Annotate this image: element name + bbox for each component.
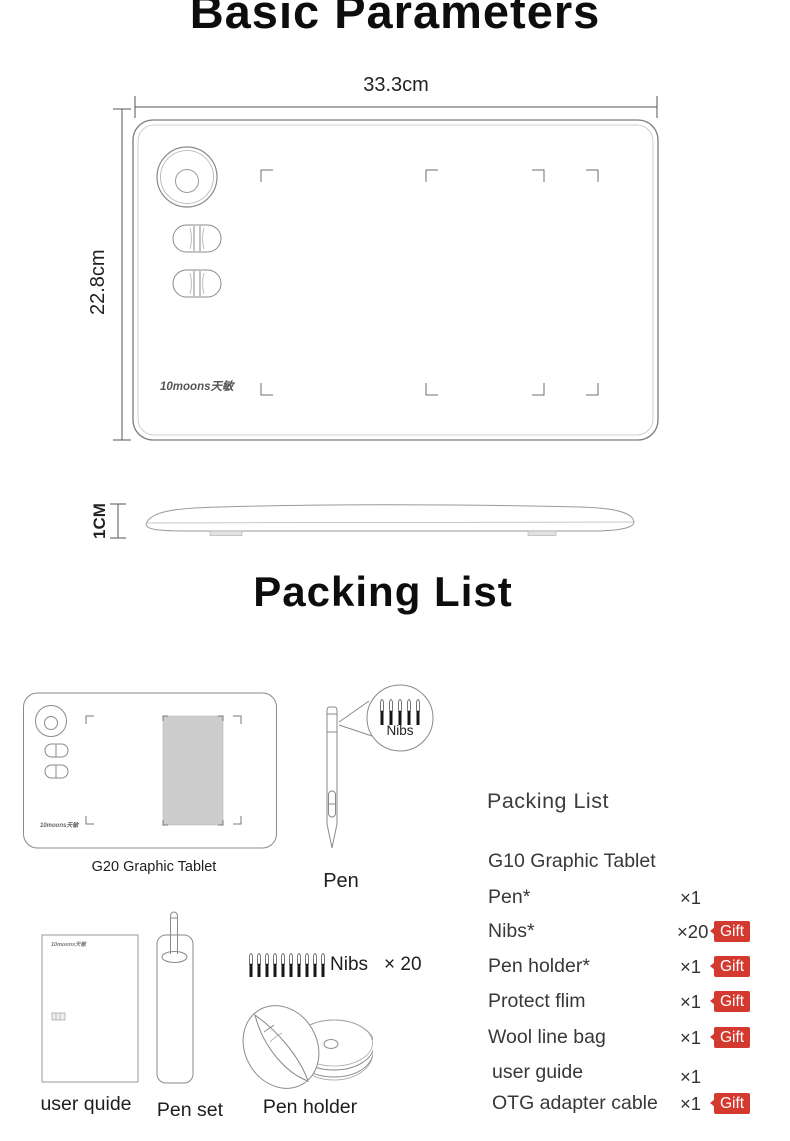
packing-list-item: Protect flim ×1 Gift <box>488 990 778 1014</box>
height-dimension-line <box>113 109 131 440</box>
active-area-highlight <box>163 716 223 825</box>
packing-list-item: user guide ×1 <box>488 1061 778 1085</box>
item-name: user guide <box>488 1061 583 1084</box>
pen-set-caption: Pen set <box>147 1099 233 1122</box>
item-name: Protect flim <box>488 990 586 1013</box>
item-qty: ×1 <box>680 991 701 1013</box>
item-qty: ×1 <box>680 956 701 978</box>
gift-badge: Gift <box>714 956 750 977</box>
nibs-row-label: Nibs <box>330 954 368 976</box>
packing-list-item: OTG adapter cable ×1 Gift <box>488 1092 778 1116</box>
nibs-row-illustration <box>246 948 332 982</box>
user-guide-illustration <box>38 930 143 1088</box>
brand-logo: 10moons天敏 <box>160 378 234 394</box>
nib-shapes <box>250 954 325 978</box>
item-qty: ×20 <box>677 921 708 943</box>
packing-list-title: Packing List <box>0 568 778 616</box>
item-qty: ×1 <box>680 887 701 909</box>
pen-holder-illustration <box>238 998 373 1093</box>
width-dimension-line <box>135 96 657 118</box>
item-qty: ×1 <box>680 1093 701 1115</box>
item-name: G10 Graphic Tablet <box>488 850 656 873</box>
pen-illustration <box>315 678 445 853</box>
pen-caption: Pen <box>310 870 372 893</box>
packing-list-item: Nibs* ×20 Gift <box>488 920 778 944</box>
thickness-dimension-line <box>110 504 126 538</box>
packing-list-item: Pen* ×1 <box>488 886 778 910</box>
packing-list-item: Pen holder* ×1 Gift <box>488 955 778 979</box>
gift-badge: Gift <box>714 1027 750 1048</box>
brand-logo-book: 10moons天敏 <box>51 940 86 948</box>
item-qty: ×1 <box>680 1027 701 1049</box>
item-name: OTG adapter cable <box>488 1092 658 1115</box>
item-name: Pen* <box>488 886 530 909</box>
packing-list-heading: Packing List <box>487 789 609 814</box>
pen-holder-caption: Pen holder <box>245 1096 375 1119</box>
item-name: Nibs* <box>488 920 535 943</box>
product-detail-page: Basic Parameters 33.3cm 22.8cm 1CM <box>0 0 790 1141</box>
item-name: Pen holder* <box>488 955 590 978</box>
g20-tablet-illustration <box>20 688 282 856</box>
item-qty: ×1 <box>680 1066 701 1088</box>
tablet-side-view <box>146 505 634 536</box>
nibs-row-qty: × 20 <box>384 954 422 976</box>
user-guide-caption: user quide <box>36 1093 136 1116</box>
g20-tablet-caption: G20 Graphic Tablet <box>54 859 254 875</box>
item-name: Wool line bag <box>488 1026 606 1049</box>
packing-list-item: Wool line bag ×1 Gift <box>488 1026 778 1050</box>
gift-badge: Gift <box>714 1093 750 1114</box>
tablet-top-view-illustration <box>80 80 680 550</box>
pen-body <box>327 707 337 848</box>
nibs-callout-label: Nibs <box>375 723 425 738</box>
gift-badge: Gift <box>714 921 750 942</box>
pen-set-illustration <box>150 905 235 1085</box>
packing-list-item: G10 Graphic Tablet <box>488 850 778 874</box>
gift-badge: Gift <box>714 991 750 1012</box>
brand-logo-mini: 10moons天敏 <box>40 820 78 829</box>
basic-parameters-title: Basic Parameters <box>0 0 790 39</box>
